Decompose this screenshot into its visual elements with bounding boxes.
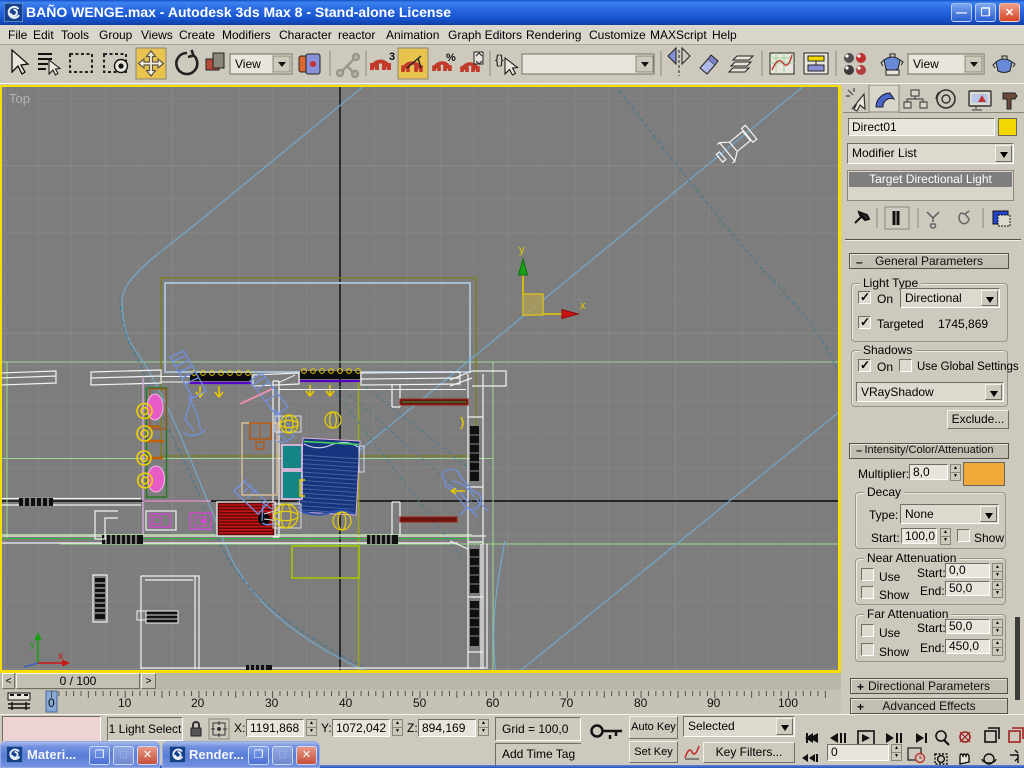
svg-text:y: y — [519, 244, 525, 256]
svg-text:70: 70 — [560, 696, 574, 710]
svg-text:View: View — [913, 57, 939, 71]
svg-text:y: y — [30, 639, 35, 650]
svg-text:View: View — [235, 57, 261, 71]
svg-text:60: 60 — [486, 696, 500, 710]
svg-text:%: % — [446, 52, 456, 64]
svg-text:80: 80 — [634, 696, 648, 710]
svg-text:Top: Top — [9, 91, 30, 106]
svg-text:10: 10 — [118, 696, 132, 710]
svg-text:3: 3 — [389, 51, 395, 63]
svg-text:{}: {} — [495, 52, 504, 67]
svg-text:90: 90 — [707, 696, 721, 710]
svg-text:20: 20 — [191, 696, 205, 710]
svg-text:30: 30 — [265, 696, 279, 710]
svg-text:x: x — [580, 300, 586, 312]
svg-text:100: 100 — [778, 696, 798, 710]
svg-text:40: 40 — [339, 696, 353, 710]
svg-text:0: 0 — [48, 696, 55, 710]
svg-text:50: 50 — [413, 696, 427, 710]
svg-text:x: x — [58, 651, 63, 662]
